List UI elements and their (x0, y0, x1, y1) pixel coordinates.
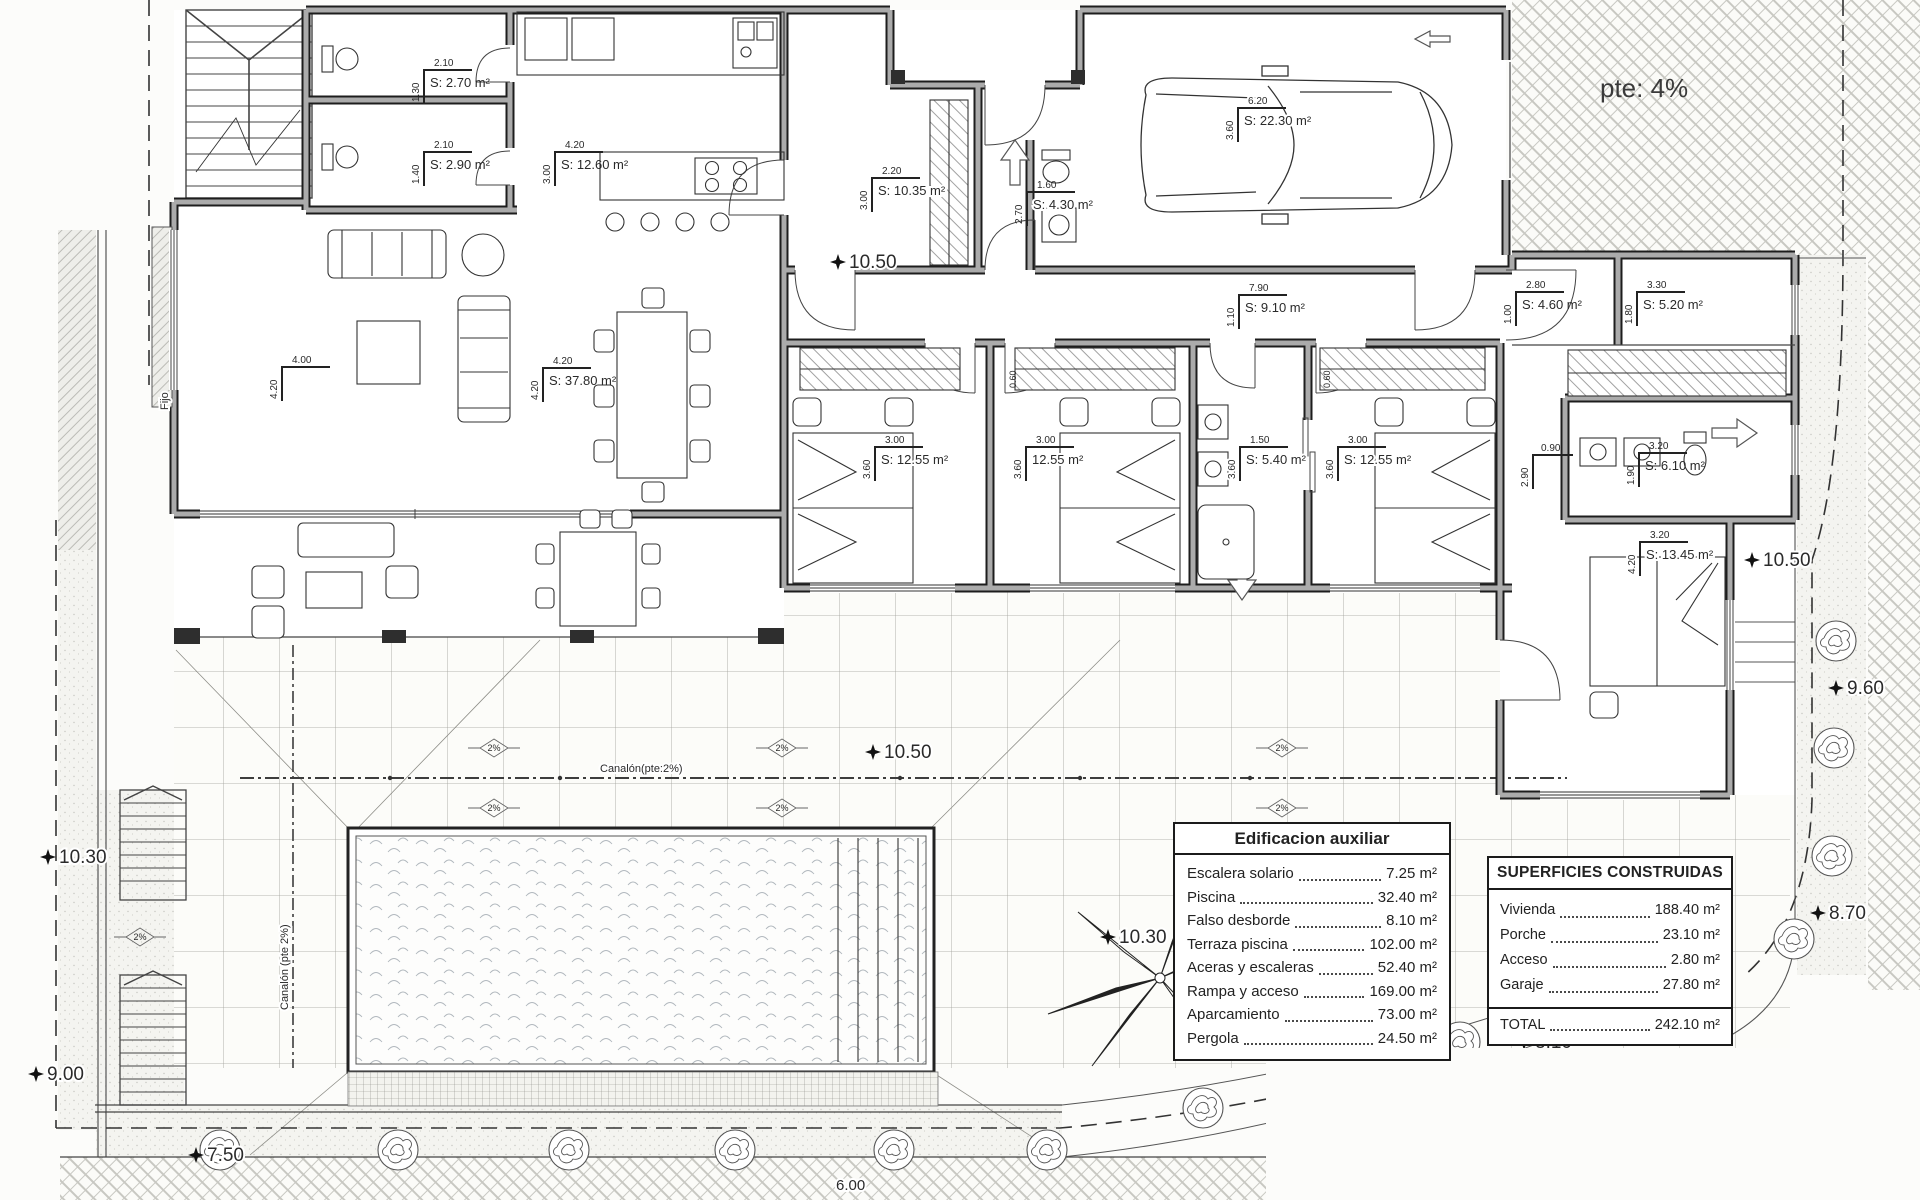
svg-text:1.80: 1.80 (1624, 304, 1635, 324)
aux-areas-table: Edificacion auxiliar Escalera solario7.2… (1173, 822, 1451, 1061)
dim-jamba-1: 0.60 (1008, 370, 1018, 388)
svg-text:3.00: 3.00 (885, 435, 905, 446)
slope-pct-label: 2% (775, 743, 788, 753)
svg-text:4.20: 4.20 (565, 140, 585, 151)
svg-text:1.90: 1.90 (1626, 465, 1637, 485)
svg-text:S: 9.10 m²: S: 9.10 m² (1245, 300, 1306, 315)
table-row: Garaje27.80 m² (1500, 973, 1720, 998)
svg-text:2.70: 2.70 (1014, 204, 1025, 224)
svg-text:3.00: 3.00 (1036, 435, 1056, 446)
svg-text:S: 12.55 m²: S: 12.55 m² (881, 452, 949, 467)
outdoor-sofa (298, 523, 394, 557)
svg-text:10.50: 10.50 (849, 252, 897, 273)
built-table-title: SUPERFICIES CONSTRUIDAS (1489, 858, 1731, 890)
svg-text:0.90: 0.90 (1541, 443, 1561, 454)
svg-text:S: 12.55 m²: S: 12.55 m² (1344, 452, 1412, 467)
svg-text:1.40: 1.40 (411, 164, 422, 184)
pool (348, 828, 934, 1072)
svg-text:S: 10.35 m²: S: 10.35 m² (878, 183, 946, 198)
slope-pct-label: 2% (1275, 743, 1288, 753)
table-row: Aceras y escaleras52.40 m² (1187, 956, 1437, 980)
slope-pct-label: 2% (775, 803, 788, 813)
svg-text:4.20: 4.20 (553, 356, 573, 367)
svg-text:S: 5.20 m²: S: 5.20 m² (1643, 297, 1704, 312)
slope-pct-label: 2% (487, 743, 500, 753)
svg-text:3.00: 3.00 (859, 190, 870, 210)
dim-jamba-2: 0.60 (1322, 370, 1332, 388)
table-row: Pergola24.50 m² (1187, 1027, 1437, 1051)
outdoor-chair (252, 566, 284, 598)
svg-text:10.30: 10.30 (59, 847, 107, 868)
svg-text:S: 13.45 m²: S: 13.45 m² (1646, 547, 1714, 562)
svg-text:6.20: 6.20 (1248, 96, 1268, 107)
svg-text:S: 37.80 m²: S: 37.80 m² (549, 373, 617, 388)
elevation-star-icon (28, 1066, 44, 1082)
slope-hatch-left (58, 230, 96, 550)
svg-text:10.30: 10.30 (1119, 927, 1167, 948)
svg-text:3.60: 3.60 (1227, 459, 1238, 479)
total-row: TOTAL242.10 m² (1489, 1007, 1731, 1044)
pool-deck (348, 1072, 938, 1106)
svg-text:8.70: 8.70 (1829, 903, 1866, 924)
svg-text:S: 12.60 m²: S: 12.60 m² (561, 157, 629, 172)
table-row: Rampa y acceso169.00 m² (1187, 980, 1437, 1004)
built-areas-table: SUPERFICIES CONSTRUIDAS Vivienda188.40 m… (1487, 856, 1733, 1046)
walkway-left (96, 790, 184, 1105)
coffee-table (357, 321, 420, 384)
table-row: Porche23.10 m² (1500, 923, 1720, 948)
driveway-paving (1512, 0, 1920, 258)
svg-text:7.50: 7.50 (207, 1145, 244, 1166)
svg-text:3.00: 3.00 (542, 164, 553, 184)
svg-text:1.50: 1.50 (1250, 435, 1270, 446)
svg-text:3.60: 3.60 (862, 459, 873, 479)
slope-pct-label: 2% (487, 803, 500, 813)
svg-text:S: 4.60 m²: S: 4.60 m² (1522, 297, 1583, 312)
whiteout-overlay (1266, 1048, 1920, 1200)
gutter-note-horizontal: Canalón(pte:2%) (600, 763, 683, 775)
svg-text:S: 2.70 m²: S: 2.70 m² (430, 75, 491, 90)
svg-text:4.20: 4.20 (1627, 554, 1638, 574)
pool-water (356, 836, 926, 1064)
aux-table-title: Edificacion auxiliar (1175, 824, 1449, 855)
svg-text:S: 5.40 m²: S: 5.40 m² (1246, 452, 1307, 467)
svg-text:3.30: 3.30 (1647, 280, 1667, 291)
slope-pct-label: 2% (133, 932, 146, 942)
svg-text:S: 6.10 m²: S: 6.10 m² (1645, 458, 1706, 473)
svg-text:2.20: 2.20 (882, 166, 902, 177)
driveway-slope-note: pte: 4% (1600, 73, 1688, 103)
gutter-note-vertical: Canalón (pte 2%) (279, 924, 291, 1010)
svg-text:1.00: 1.00 (1503, 304, 1514, 324)
svg-text:9.00: 9.00 (47, 1064, 84, 1085)
elevation-marker: 9.00 (28, 1064, 84, 1085)
svg-text:3.00: 3.00 (1348, 435, 1368, 446)
floor-plan: 2% 2% 2% 2% 2% 2% 2% (0, 0, 1920, 1200)
svg-text:3.20: 3.20 (1650, 530, 1670, 541)
svg-text:3.60: 3.60 (1013, 459, 1024, 479)
outdoor-chair (386, 566, 418, 598)
svg-text:1.60: 1.60 (1037, 180, 1057, 191)
elevation-marker: 10.30 (40, 847, 107, 868)
svg-text:2.10: 2.10 (434, 140, 454, 151)
table-row: Terraza piscina102.00 m² (1187, 933, 1437, 957)
svg-text:10.50: 10.50 (1763, 550, 1811, 571)
sofa-vertical (458, 296, 510, 422)
svg-text:S: 4.30 m²: S: 4.30 m² (1033, 197, 1094, 212)
svg-text:12.55 m²: 12.55 m² (1032, 452, 1084, 467)
svg-text:4.20: 4.20 (269, 379, 280, 399)
sofa-horizontal (328, 230, 446, 278)
svg-text:3.20: 3.20 (1649, 441, 1669, 452)
bottom-dimension: 6.00 (836, 1177, 865, 1194)
svg-text:9.60: 9.60 (1847, 678, 1884, 699)
svg-text:3.60: 3.60 (1225, 120, 1236, 140)
svg-text:4.20: 4.20 (530, 380, 541, 400)
svg-text:3.60: 3.60 (1325, 459, 1336, 479)
svg-text:2.80: 2.80 (1526, 280, 1546, 291)
svg-text:2.90: 2.90 (1520, 467, 1531, 487)
svg-text:1.10: 1.10 (1226, 307, 1237, 327)
table-row: Aparcamiento73.00 m² (1187, 1003, 1437, 1027)
outdoor-chair (252, 606, 284, 638)
fixed-window-note: Fijo (159, 392, 171, 410)
verge-left (58, 550, 96, 1130)
slope-pct-label: 2% (1275, 803, 1288, 813)
svg-text:2.10: 2.10 (434, 58, 454, 69)
svg-text:7.90: 7.90 (1249, 283, 1269, 294)
elevation-star-icon (40, 849, 56, 865)
table-row: Falso desborde8.10 m² (1187, 909, 1437, 933)
table-row: Piscina32.40 m² (1187, 886, 1437, 910)
outdoor-table (306, 572, 362, 608)
svg-text:10.50: 10.50 (884, 742, 932, 763)
street-paving-right (1868, 255, 1920, 990)
svg-text:S: 2.90 m²: S: 2.90 m² (430, 157, 491, 172)
table-row: Escalera solario7.25 m² (1187, 862, 1437, 886)
table-row: Vivienda188.40 m² (1500, 898, 1720, 923)
svg-text:1.30: 1.30 (411, 82, 422, 102)
svg-text:4.00: 4.00 (292, 355, 312, 366)
table-row: Acceso2.80 m² (1500, 948, 1720, 973)
svg-text:S: 22.30 m²: S: 22.30 m² (1244, 113, 1312, 128)
round-table (462, 234, 504, 276)
